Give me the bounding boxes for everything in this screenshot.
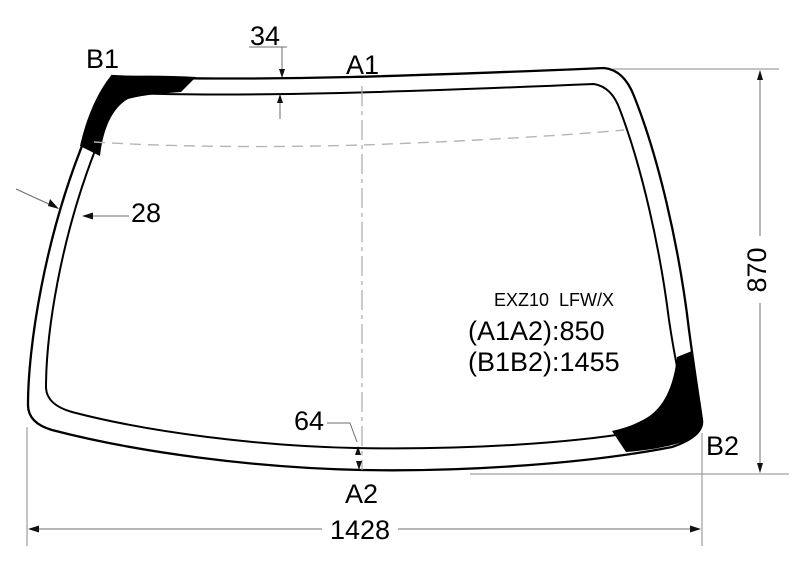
dim-side-band-value: 28 <box>131 198 161 228</box>
label-b2: B2 <box>706 431 739 461</box>
dim-a1a2-note: (A1A2):850 <box>468 316 605 346</box>
glass-inner-edge <box>46 84 685 448</box>
label-b1: B1 <box>86 44 119 74</box>
dimension-top-band <box>249 47 287 119</box>
dim-width-value: 1428 <box>330 515 390 545</box>
frit-boundary-dashed-line <box>94 130 624 147</box>
part-code: EXZ10 LFW/X <box>494 290 614 310</box>
label-a1: A1 <box>346 50 379 80</box>
dim-height-value: 870 <box>742 247 772 292</box>
dim-top-band-value: 34 <box>250 21 280 51</box>
dim-b1b2-note: (B1B2):1455 <box>468 347 620 377</box>
windshield-diagram: B1 A1 A2 B2 34 28 64 870 1428 EXZ10 LFW/… <box>0 0 800 564</box>
dim-bottom-band-value: 64 <box>294 406 324 436</box>
label-a2: A2 <box>345 479 378 509</box>
frit-patch-b2 <box>612 351 702 452</box>
glass-outer-edge <box>28 68 702 470</box>
diagram-svg: B1 A1 A2 B2 34 28 64 870 1428 EXZ10 LFW/… <box>0 0 800 564</box>
